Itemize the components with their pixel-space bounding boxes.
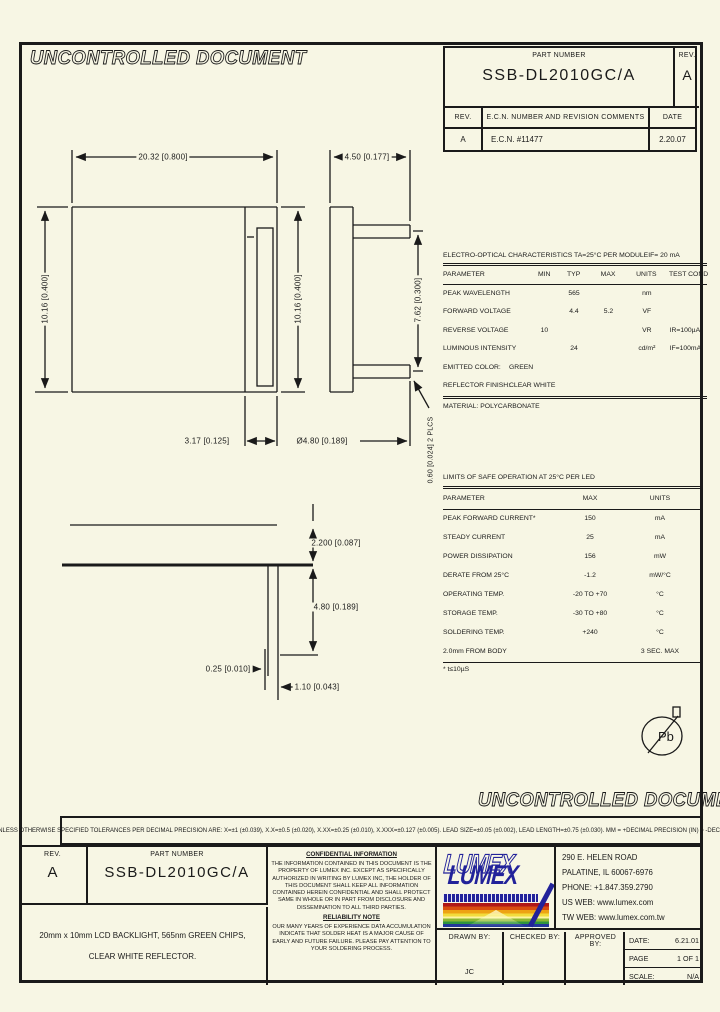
safe-h-units: UNITS [617,496,703,503]
logo-tagline-bar [443,894,538,902]
safe-title: LIMITS OF SAFE OPERATION AT 25°C PER LED [443,475,595,482]
safe-units: °C [617,611,703,618]
history-header-date: DATE [650,108,695,127]
watermark-bottom: UNCONTROLLED DOCUMENT [478,790,720,812]
dim-pin-thickness: 0.60 [0.024] 2 PLCS [428,415,435,486]
dim-body-thickness: 2.200 [0.087] [309,539,362,548]
eo-typ: 565 [559,291,589,298]
scale-label: SCALE: [629,972,655,981]
eo-h-param: PARAMETER [443,272,529,279]
watermark-top: UNCONTROLLED DOCUMENT [30,48,306,70]
safe-max: 150 [563,516,617,523]
tb-rev-value: A [19,864,86,881]
safe-max: -1.2 [563,573,617,580]
drawn-by-cell: DRAWN BY: JC [437,932,504,985]
tolerance-note-bar: UNLESS OTHERWISE SPECIFIED TOLERANCES PE… [60,816,703,845]
eo-condition: IF= 20 mA [648,253,720,260]
part-number-label: PART NUMBER [445,52,673,59]
dim-height-mid: 10.16 [0.400] [294,272,303,325]
address-line: PHONE: +1.847.359.2790 [562,880,703,895]
date-page-scale-cell: DATE: 6.21.01 PAGE 1 OF 1 SCALE: N/A [625,932,703,985]
eo-color-value: GREEN [509,365,533,372]
eo-material-note: MATERIAL: POLYCARBONATE [443,396,707,415]
eo-finish-value: CLEAR WHITE [509,383,555,390]
rev-value: A [675,67,699,83]
front-view-outline [72,207,277,392]
page-value: 1 OF 1 [677,954,699,963]
dim-tab-width: 4.50 [0.177] [343,153,392,162]
confidential-text: THE INFORMATION CONTAINED IN THIS DOCUME… [271,861,432,912]
eo-row: LUMINOUS INTENSITY 24 cd/m² IF=100mA [443,341,707,360]
description-line2: CLEAR WHITE REFLECTOR. [19,952,266,961]
safe-param: OPERATING TEMP. [443,592,563,599]
eo-color-row: EMITTED COLOR: GREEN [443,359,707,378]
safe-units: °C [617,592,703,599]
tolerance-note: UNLESS OTHERWISE SPECIFIED TOLERANCES PE… [0,827,720,834]
dim-pin-length-top: Ø4.80 [0.189] [294,437,349,446]
safe-row: SOLDERING TEMP. +240 °C [443,624,703,643]
titleblock-pn-cell: PART NUMBER SSB-DL2010GC/A [88,847,268,905]
description-line1: 20mm x 10mm LCD BACKLIGHT, 565nm GREEN C… [19,931,266,940]
dim-height-left: 10.16 [0.400] [41,272,50,325]
safe-param: DERATE FROM 25°C [443,573,563,580]
history-date: 2.20.07 [650,129,695,150]
safe-units: mW/°C [617,573,703,580]
safe-param: SOLDERING TEMP. [443,630,563,637]
eo-test: IF=100mA [666,346,707,353]
safe-h-param: PARAMETER [443,496,563,503]
eo-max: 5.2 [589,309,628,316]
part-number: SSB-DL2010GC/A [445,67,673,85]
lumex-logo: LUMEX [447,860,519,891]
safe-h-max: MAX [563,496,617,503]
tb-rev-label: REV. [19,851,86,858]
history-header-comments: E.C.N. NUMBER AND REVISION COMMENTS [483,108,650,127]
eo-h-min: MIN [529,272,558,279]
drawn-by-value: JC [437,967,502,976]
safe-row: POWER DISSIPATION 156 mW [443,548,703,567]
safe-units: mW [617,554,703,561]
safe-param: 2.0mm FROM BODY [443,649,563,656]
eo-h-units: UNITS [628,272,665,279]
eo-h-max: MAX [588,272,627,279]
drawn-by-label: DRAWN BY: [437,934,502,941]
eo-h-test: TEST COND [665,272,707,279]
tb-pn-label: PART NUMBER [88,851,266,858]
date-label: DATE: [629,936,650,945]
scale-value: N/A [687,972,699,981]
eo-typ: 4.4 [559,309,589,316]
eo-typ: 24 [559,346,589,353]
eo-units: VF [628,309,665,316]
address-line: 290 E. HELEN ROAD [562,850,703,865]
eo-row: PEAK WAVELENGTH 565 nm [443,285,707,304]
safe-row: OPERATING TEMP. -20 TO +70 °C [443,586,703,605]
safe-table: LIMITS OF SAFE OPERATION AT 25°C PER LED… [443,470,703,678]
confidential-cell: CONFIDENTIAL INFORMATION THE INFORMATION… [268,847,437,985]
safe-units: mA [617,516,703,523]
dimension-lines [35,150,429,690]
date-value: 6.21.01 [675,936,699,945]
safe-max: -30 TO +80 [563,611,617,618]
eo-table: ELECTRO-OPTICAL CHARACTERISTICS TA=25°C … [443,249,707,415]
reliability-text: OUR MANY YEARS OF EXPERIENCE DATA ACCUMU… [271,924,432,953]
eo-min: 10 [530,328,560,335]
dim-pin-offset: 0.25 [0.010] [204,665,253,674]
dim-overall-width: 20.32 [0.800] [136,153,189,162]
eo-param: FORWARD VOLTAGE [443,309,530,316]
pb-free-label: Pb [658,729,674,744]
approved-by-label: APPROVED BY: [568,934,623,948]
dim-pin-width: 1.10 [0.043] [293,683,342,692]
eo-row: FORWARD VOLTAGE 4.4 5.2 VF [443,304,707,323]
confidential-title: CONFIDENTIAL INFORMATION [271,851,432,859]
address-line: PALATINE, IL 60067-6976 [562,865,703,880]
eo-h-typ: TYP [559,272,588,279]
side-profile-view [330,207,410,392]
eo-param: REVERSE VOLTAGE [443,328,530,335]
eo-param: LUMINOUS INTENSITY [443,346,530,353]
address-line: TW WEB: www.lumex.com.tw [562,910,703,925]
safe-units: mA [617,535,703,542]
eo-color-label: EMITTED COLOR: [443,365,509,372]
eo-units: cd/m² [628,346,665,353]
rev-label: REV. [675,52,699,59]
safe-max: +240 [563,630,617,637]
safe-row: STORAGE TEMP. -30 TO +80 °C [443,605,703,624]
checked-by-cell: CHECKED BY: [506,932,566,985]
safe-param: POWER DISSIPATION [443,554,563,561]
safe-row: PEAK FORWARD CURRENT* 150 mA [443,510,703,529]
titleblock-rev-cell: REV. A [19,847,88,905]
eo-test: IR=100µA [666,328,707,335]
checked-by-label: CHECKED BY: [506,934,564,941]
logo-cell: LUMEX LUMEX [437,847,556,930]
safe-row: STEADY CURRENT 25 mA [443,529,703,548]
datasheet-page: { "sheet": { "watermark_top": "UNCONTROL… [0,0,720,1012]
safe-units: 3 SEC. MAX [617,649,703,656]
safe-units: °C [617,630,703,637]
bottom-side-view [62,504,318,700]
safe-param: PEAK FORWARD CURRENT* [443,516,563,523]
title-block: REV. A PART NUMBER SSB-DL2010GC/A 20mm x… [19,845,703,983]
dim-pin-length-side: 4.80 [0.189] [312,603,361,612]
history-comment: E.C.N. #11477 [483,129,650,150]
address-line: US WEB: www.lumex.com [562,895,703,910]
safe-row: 2.0mm FROM BODY 3 SEC. MAX [443,643,703,662]
eo-units: VR [628,328,665,335]
reliability-title: RELIABILITY NOTE [271,914,432,922]
description-cell: 20mm x 10mm LCD BACKLIGHT, 565nm GREEN C… [19,907,268,985]
safe-max: 25 [563,535,617,542]
safe-row: DERATE FROM 25°C -1.2 mW/°C [443,567,703,586]
address-cell: 290 E. HELEN ROAD PALATINE, IL 60067-697… [556,847,703,930]
dim-pin-spacing: 7.62 [0.300] [414,276,423,325]
revision-block: PART NUMBER SSB-DL2010GC/A REV. A REV. E… [443,46,697,152]
safe-max: 156 [563,554,617,561]
history-header-rev: REV. [445,108,483,127]
safe-param: STEADY CURRENT [443,535,563,542]
tb-pn-value: SSB-DL2010GC/A [88,864,266,881]
history-row: A E.C.N. #11477 2.20.07 [445,129,695,150]
safe-param: STORAGE TEMP. [443,611,563,618]
dim-slot-width: 3.17 [0.125] [183,437,232,446]
safe-max: -20 TO +70 [563,592,617,599]
approved-by-cell: APPROVED BY: [568,932,625,985]
eo-row: REVERSE VOLTAGE 10 VR IR=100µA [443,322,707,341]
eo-finish-label: REFLECTOR FINISH: [443,383,509,390]
eo-title: ELECTRO-OPTICAL CHARACTERISTICS TA=25°C … [443,253,648,260]
history-rev: A [445,129,483,150]
eo-finish-row: REFLECTOR FINISH: CLEAR WHITE [443,378,707,397]
eo-units: nm [628,291,665,298]
page-label: PAGE [629,954,648,963]
safe-footnote: * t≤10µS [443,662,703,678]
eo-param: PEAK WAVELENGTH [443,291,530,298]
